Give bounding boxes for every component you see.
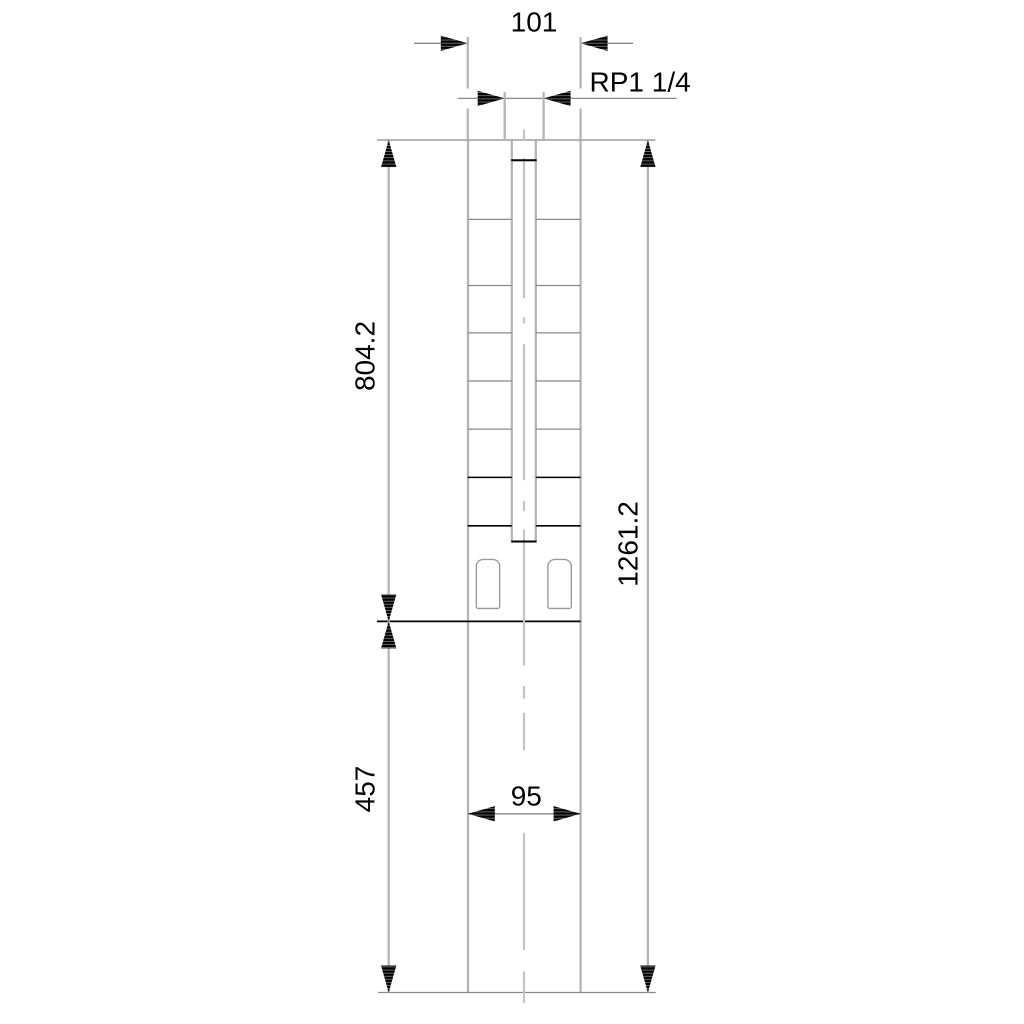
svg-text:101: 101 xyxy=(511,7,558,38)
svg-text:457: 457 xyxy=(350,766,381,813)
svg-text:804.2: 804.2 xyxy=(350,321,381,391)
svg-text:RP1 1/4: RP1 1/4 xyxy=(590,66,691,97)
svg-text:1261.2: 1261.2 xyxy=(613,501,644,587)
svg-text:95: 95 xyxy=(511,781,542,812)
